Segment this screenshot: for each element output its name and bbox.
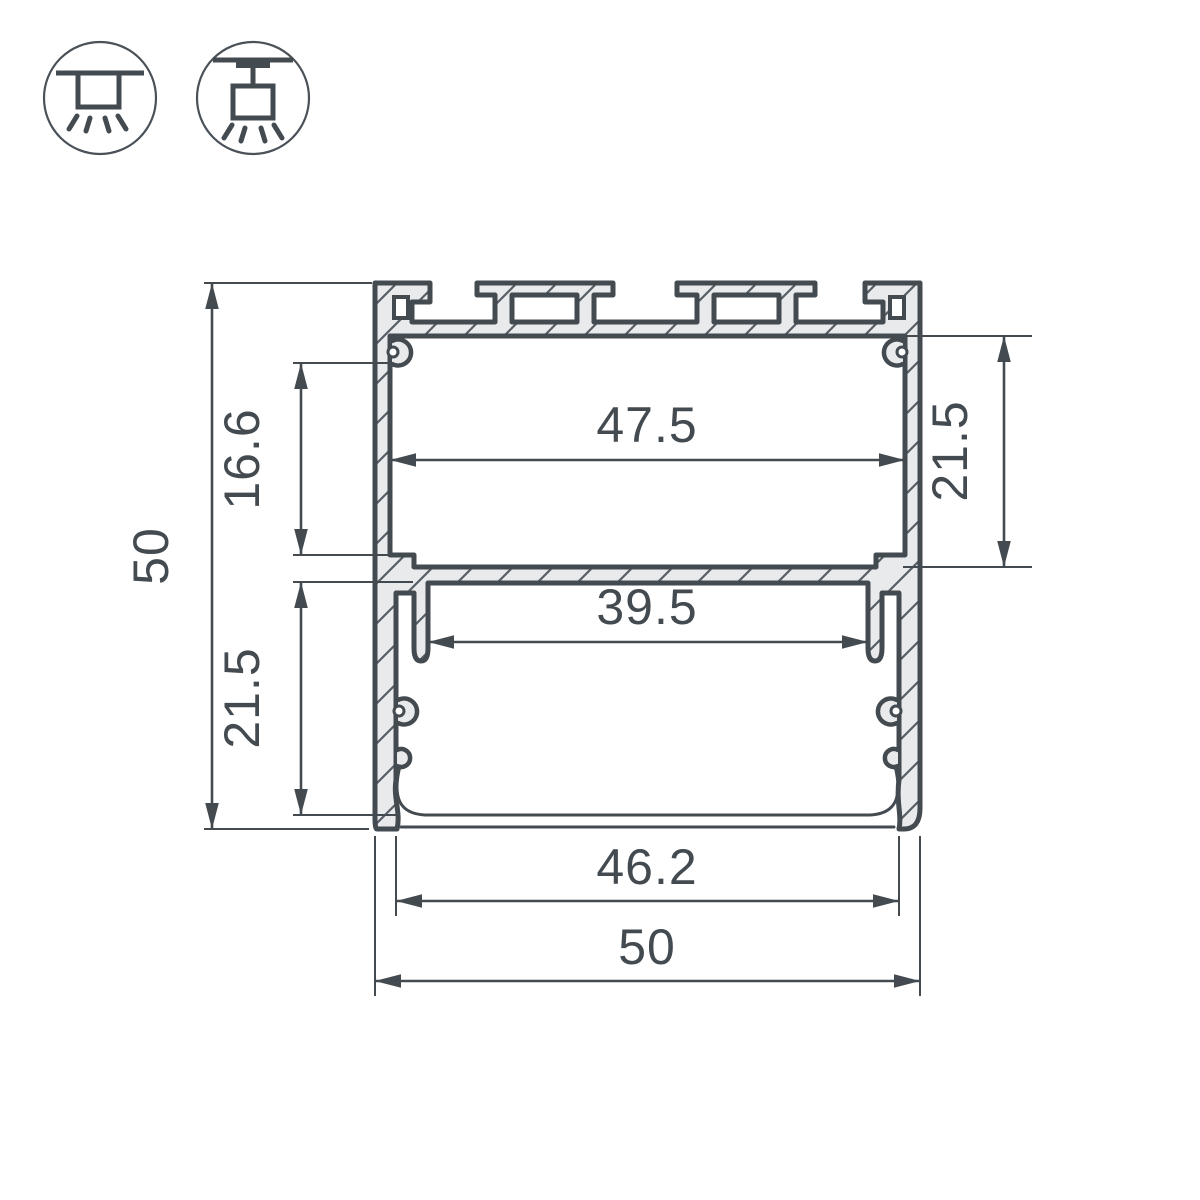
profile-body — [375, 283, 920, 829]
dim-upper-side-height: 16.6 — [214, 363, 390, 555]
dimensions: 50 16.6 21.5 21.5 47.5 39.5 — [123, 283, 1032, 996]
light-ray — [224, 125, 232, 138]
light-ray — [261, 128, 265, 141]
dimension-label: 21.5 — [214, 647, 270, 748]
light-ray — [69, 116, 77, 129]
screw-boss-notch — [897, 347, 907, 357]
retainer-hook — [397, 749, 410, 767]
dimension-label: 47.5 — [596, 397, 697, 453]
screw-boss-notch — [388, 347, 398, 357]
dimension-label: 39.5 — [596, 579, 697, 635]
mount-icons — [44, 42, 309, 154]
diffuser-tray — [397, 766, 898, 815]
dimension-label: 16.6 — [214, 408, 270, 509]
light-ray — [274, 125, 282, 138]
dim-top-inner-width: 47.5 — [390, 397, 905, 460]
dim-bottom-opening-width: 46.2 — [396, 836, 899, 916]
corner-hook-slot — [890, 297, 904, 318]
surface-mount-icon — [44, 42, 156, 154]
light-ray — [118, 116, 126, 129]
dimension-label: 50 — [123, 527, 179, 585]
profile-extrusion-section — [375, 283, 920, 829]
dim-mid-inner-width: 39.5 — [428, 579, 868, 642]
light-ray — [241, 128, 245, 141]
corner-hook-slot — [394, 297, 408, 318]
screw-boss-notch — [394, 706, 404, 716]
light-ray — [105, 118, 109, 131]
profile-cross-section-drawing: 50 16.6 21.5 21.5 47.5 39.5 — [0, 0, 1200, 1200]
dimension-label: 21.5 — [922, 400, 978, 501]
pendant-mount-icon — [197, 42, 309, 154]
dimension-label: 50 — [618, 919, 676, 975]
light-ray — [86, 118, 90, 131]
screw-boss-notch — [891, 706, 901, 716]
dimension-label: 46.2 — [596, 839, 697, 895]
luminaire-box — [233, 86, 273, 118]
drawing-canvas: 50 16.6 21.5 21.5 47.5 39.5 — [0, 0, 1200, 1200]
retainer-hook — [885, 749, 898, 767]
icon-circle — [44, 42, 156, 154]
luminaire-box — [78, 73, 119, 107]
